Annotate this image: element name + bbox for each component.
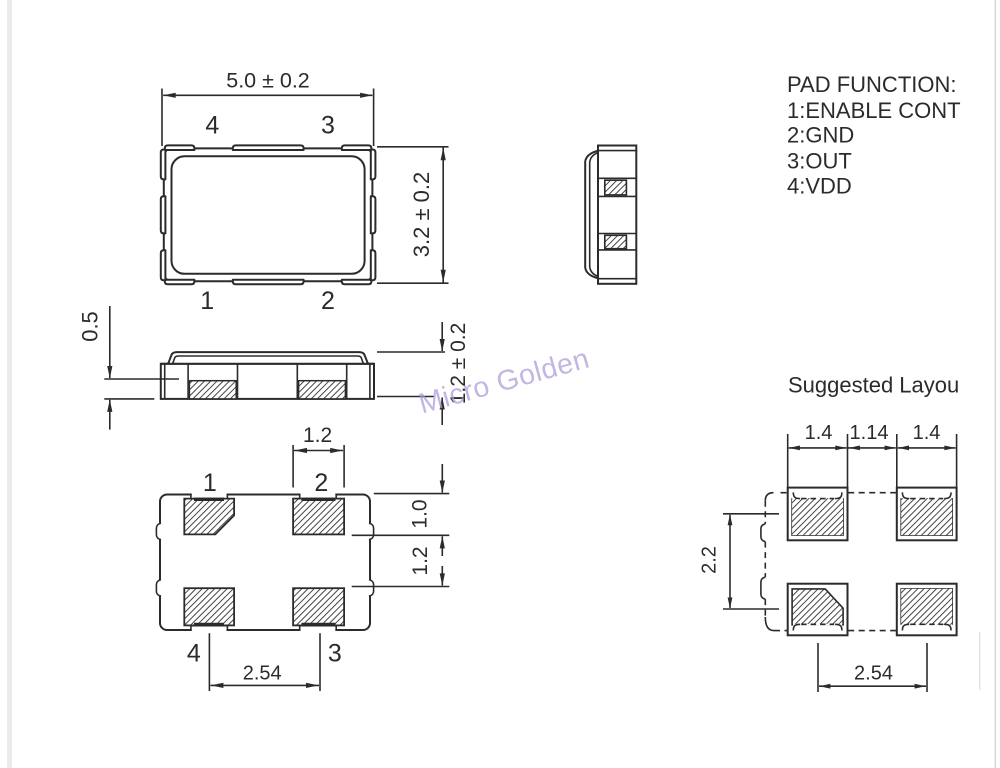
svg-text:4:VDD: 4:VDD bbox=[787, 174, 852, 199]
svg-text:2.2: 2.2 bbox=[698, 546, 720, 574]
svg-text:3:OUT: 3:OUT bbox=[787, 148, 852, 173]
svg-text:1.0: 1.0 bbox=[409, 499, 432, 528]
svg-text:PAD FUNCTION:: PAD FUNCTION: bbox=[787, 72, 956, 97]
svg-text:1.2: 1.2 bbox=[303, 424, 332, 447]
svg-text:2: 2 bbox=[314, 469, 328, 497]
svg-text:2.54: 2.54 bbox=[854, 663, 893, 685]
svg-text:0.5: 0.5 bbox=[78, 311, 103, 342]
svg-text:1:ENABLE CONT: 1:ENABLE CONT bbox=[787, 98, 961, 123]
svg-text:1: 1 bbox=[200, 287, 214, 315]
svg-text:5.0 ± 0.2: 5.0 ± 0.2 bbox=[226, 69, 310, 93]
svg-text:4: 4 bbox=[187, 640, 201, 668]
svg-text:1.4: 1.4 bbox=[913, 422, 941, 444]
svg-text:3: 3 bbox=[321, 112, 335, 140]
svg-text:1: 1 bbox=[203, 469, 217, 497]
svg-text:3.2 ± 0.2: 3.2 ± 0.2 bbox=[409, 172, 434, 257]
svg-text:1.14: 1.14 bbox=[850, 422, 889, 444]
svg-text:2:GND: 2:GND bbox=[787, 123, 854, 148]
svg-text:3: 3 bbox=[328, 640, 342, 668]
svg-text:1.4: 1.4 bbox=[805, 422, 833, 444]
svg-text:1.2: 1.2 bbox=[409, 546, 432, 575]
svg-text:2.54: 2.54 bbox=[243, 662, 282, 684]
svg-text:4: 4 bbox=[205, 112, 219, 140]
svg-text:Suggested Layou: Suggested Layou bbox=[788, 373, 959, 398]
svg-text:2: 2 bbox=[321, 287, 335, 315]
